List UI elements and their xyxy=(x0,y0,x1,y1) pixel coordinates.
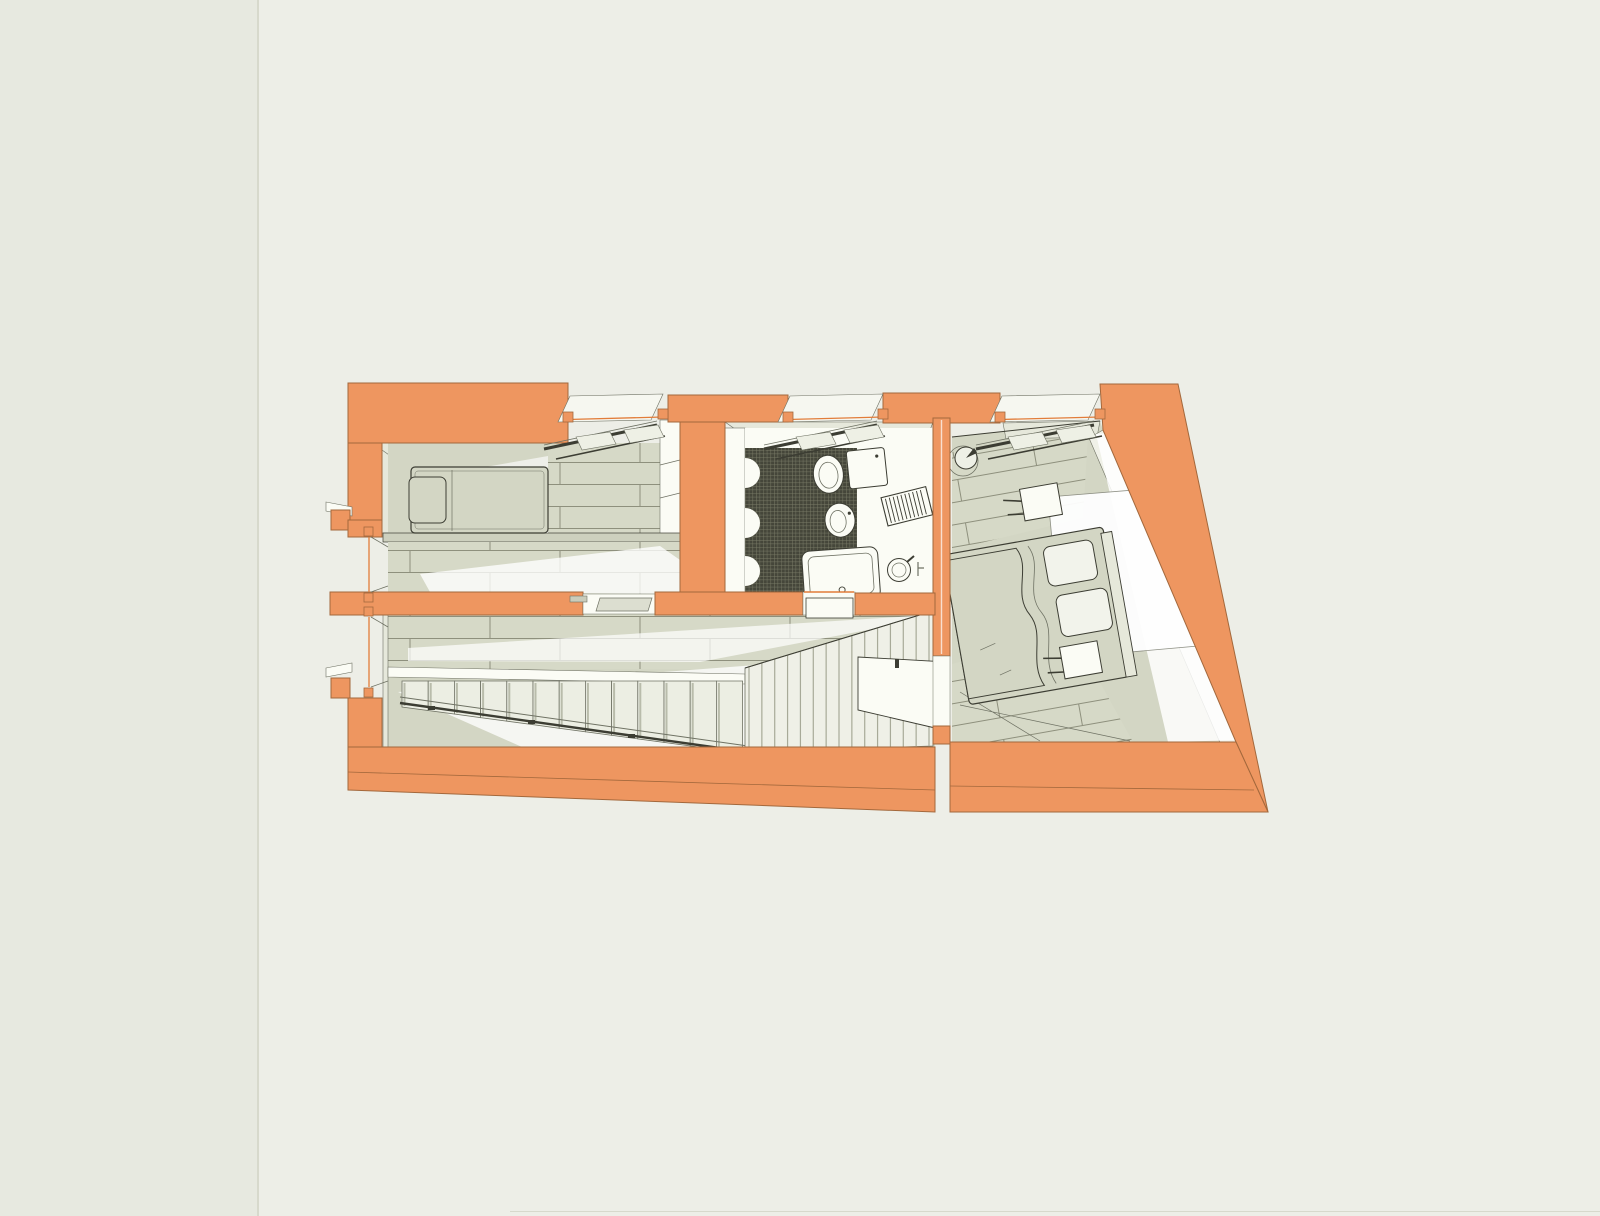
wall-bottom-left xyxy=(348,747,935,812)
nightstand-body xyxy=(1019,483,1062,521)
bedroom-small-partition-wall xyxy=(383,533,680,542)
wall-bedroom-bathroom-divider xyxy=(680,422,725,597)
window-bracket xyxy=(658,409,668,419)
stair-hall-left-reveal xyxy=(383,613,388,755)
bathroom-left-wall-face xyxy=(725,428,745,598)
wall-bottom-right xyxy=(950,742,1268,812)
double-bed xyxy=(943,526,1137,705)
wall-top-left xyxy=(348,383,568,443)
window-bracket xyxy=(364,607,373,616)
wall-left-sill-block-lower xyxy=(331,678,350,698)
single-bed-pillow xyxy=(409,477,446,523)
nightstand-body xyxy=(1059,641,1102,679)
bedroom-bathroom-wall-face xyxy=(660,420,680,545)
window-sill-outer-lower xyxy=(326,663,352,677)
window-bracket xyxy=(364,593,373,602)
wall-left-lower xyxy=(348,698,382,750)
architectural-drawing-page xyxy=(0,0,1600,1216)
window-bracket xyxy=(563,412,573,422)
door-handle xyxy=(895,659,899,668)
wall-left-upper xyxy=(348,443,382,520)
wall-master-left-lower xyxy=(933,726,950,744)
window-bracket xyxy=(364,527,373,536)
window-bracket xyxy=(1095,409,1105,419)
floor-plan-axonometric xyxy=(0,0,1600,1216)
toilet-cistern xyxy=(846,447,888,489)
window-bracket xyxy=(364,688,373,697)
pillow-bottom xyxy=(1055,587,1114,637)
stair-step xyxy=(690,681,716,749)
pocket-door-panel xyxy=(596,598,652,611)
wall-mid-band-center xyxy=(655,592,803,615)
single-bed xyxy=(409,467,548,533)
wall-mid-band-right xyxy=(855,593,935,615)
bathroom-sliding-door-leaf xyxy=(806,598,853,618)
reveal-splay-line xyxy=(371,586,388,592)
master-door-threshold xyxy=(933,656,950,726)
stair-step xyxy=(585,681,611,735)
window-bracket xyxy=(878,409,888,419)
wall-left-sill-block-upper xyxy=(331,510,350,530)
window-bracket xyxy=(783,412,793,422)
stair-step xyxy=(559,681,585,732)
glazing-pane xyxy=(624,425,664,443)
pocket-door-stop xyxy=(570,596,587,602)
wall-header-bathroom-left xyxy=(668,395,788,422)
pillow-top xyxy=(1042,539,1098,587)
window-bracket xyxy=(995,412,1005,422)
